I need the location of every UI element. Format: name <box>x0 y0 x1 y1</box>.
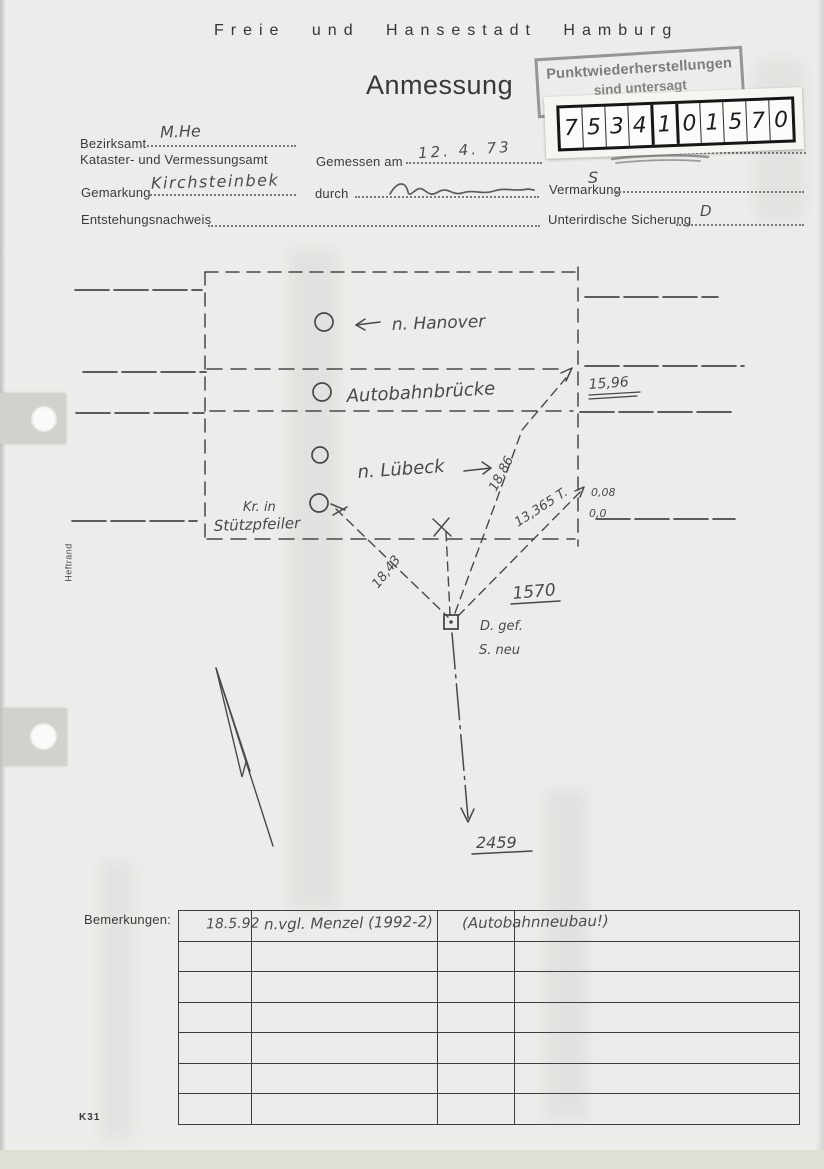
digit-cell: 7 <box>559 108 583 149</box>
offset2-text: 0,0 <box>589 507 607 520</box>
direction-arrow-left-icon <box>356 319 380 330</box>
digit-cell: 4 <box>628 105 654 146</box>
dist-corner-text: 15,96 <box>588 374 629 393</box>
survey-sketch: n. Hanover Autobahnbrücke n. Lübeck Kr. … <box>0 0 824 1169</box>
cross-mark-icon <box>433 518 451 536</box>
survey-circle-icons <box>310 313 333 512</box>
point-number-text: 1570 <box>512 580 557 604</box>
digit-cell: 1 <box>701 102 725 143</box>
digit-cell: 3 <box>605 106 629 147</box>
pillar-arrow-ticks <box>331 504 347 515</box>
pencil-mark <box>616 160 700 163</box>
signature-scribble <box>390 184 534 194</box>
corner-arrowhead <box>561 368 572 381</box>
direction-arrow-right-icon <box>464 462 491 474</box>
direction-right-text: n. Lübeck <box>357 456 447 483</box>
remark-note: n.vgl. Menzel (1992-2) <box>264 913 433 934</box>
point-note2-text: S. neu <box>479 643 520 658</box>
remark-note2: (Autobahnneubau!) <box>462 912 609 933</box>
point-note1-text: D. gef. <box>480 619 523 634</box>
digit-cell: 0 <box>769 99 792 140</box>
point-number-sticker: 7 5 3 4 1 0 1 5 7 0 <box>544 87 804 159</box>
digit-cell: 5 <box>582 107 606 148</box>
digit-cell: 7 <box>746 100 770 141</box>
digit-cell: 0 <box>678 103 702 144</box>
pillar-text-1: Kr. in <box>243 500 276 515</box>
point-number-digit-boxes: 7 5 3 4 1 0 1 5 7 0 <box>556 96 796 151</box>
direction-left-text: n. Hanover <box>391 312 486 335</box>
north-arrow-icon <box>216 668 273 846</box>
scanned-survey-form: Freie und Hansestadt Hamburg Anmessung P… <box>0 0 824 1169</box>
road-lines-left <box>72 290 206 521</box>
point-marker-icon <box>444 615 458 629</box>
dist-left-text: 18,43 <box>369 553 404 592</box>
remark-date: 18.5.92 <box>206 916 260 933</box>
dist-right-text: 13,365 T. <box>512 485 571 530</box>
dist-mid-text: 18,86 <box>486 454 517 494</box>
digit-cell: 5 <box>724 101 748 142</box>
target-point-text: 2459 <box>476 833 517 852</box>
pillar-text-2: Stützpfeiler <box>214 514 302 535</box>
underline <box>589 392 640 399</box>
ray-to-target <box>452 633 468 818</box>
offset1-text: 0,08 <box>591 486 616 499</box>
digit-cell: 1 <box>653 104 679 145</box>
bridge-text: Autobahnbrücke <box>345 378 496 407</box>
